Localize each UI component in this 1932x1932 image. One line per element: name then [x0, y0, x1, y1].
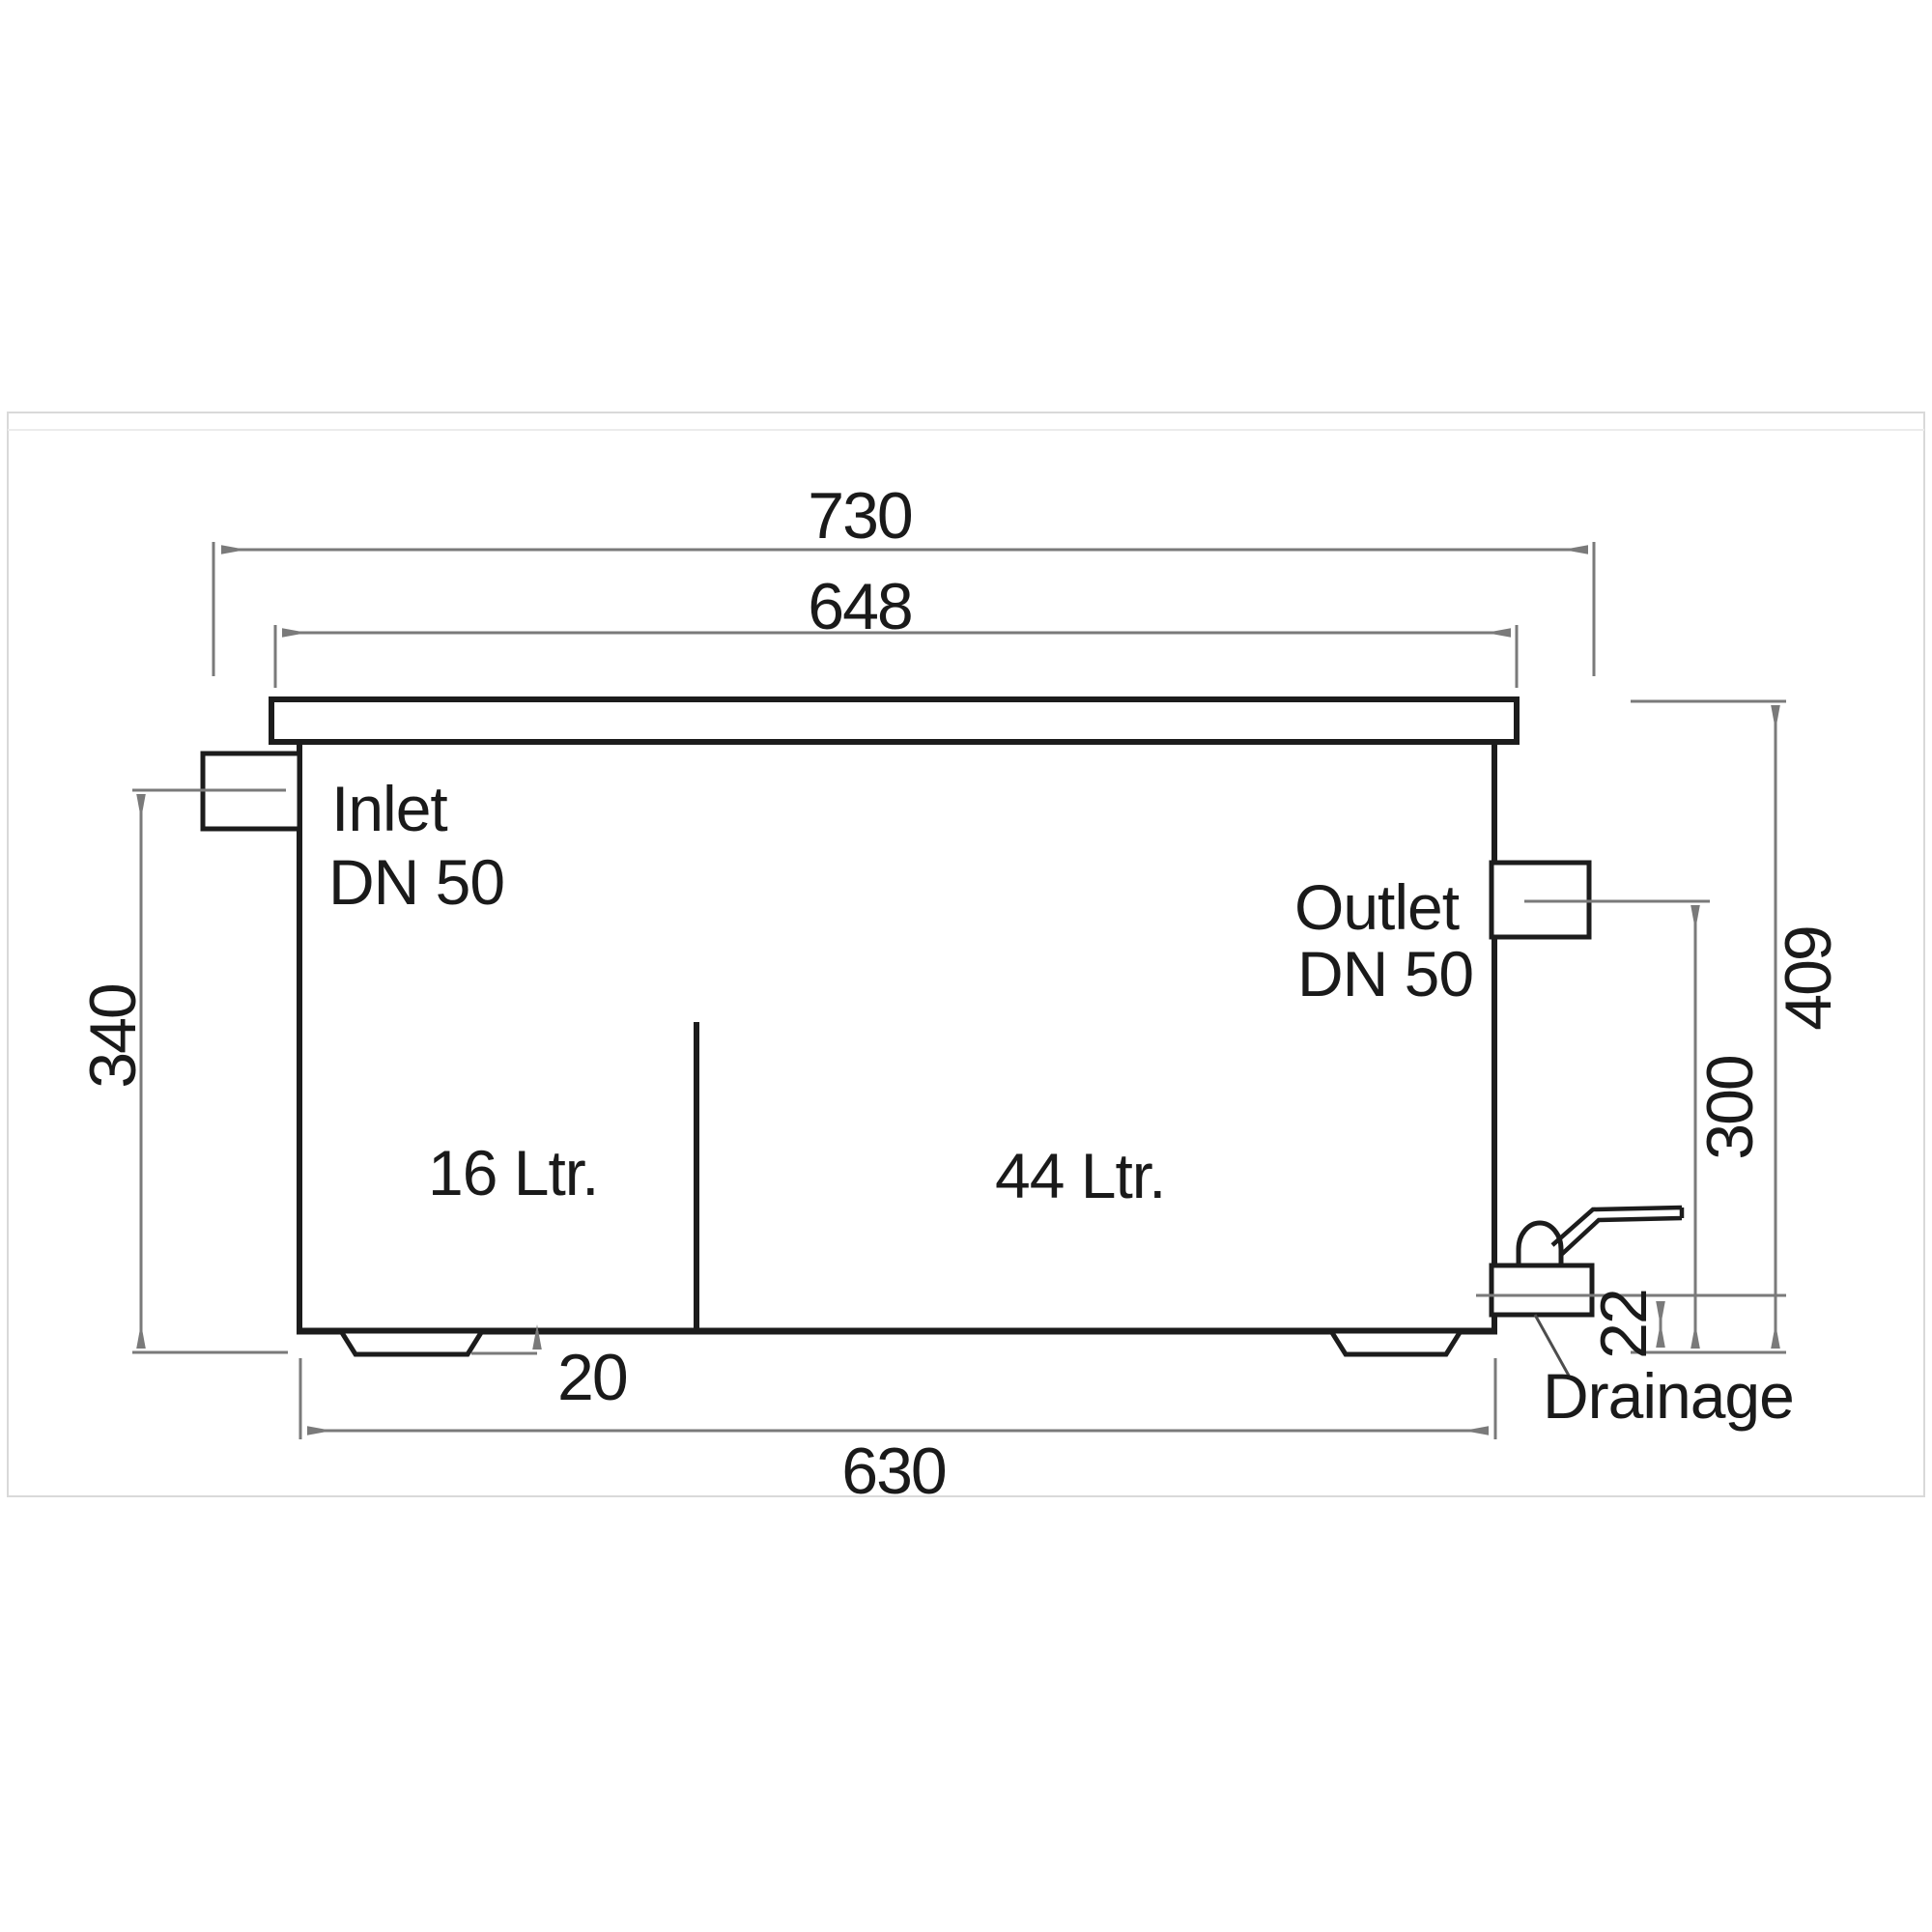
inlet-label: Inlet — [331, 773, 447, 844]
inlet-size-label: DN 50 — [328, 846, 504, 918]
compartment-left-volume-label: 16 Ltr. — [428, 1137, 598, 1208]
outlet-size-label: DN 50 — [1297, 938, 1473, 1009]
drain-valve-body — [1492, 1265, 1592, 1315]
dim-label-409: 409 — [1772, 926, 1845, 1030]
dim-label-730: 730 — [808, 479, 912, 553]
dim-label-22: 22 — [1587, 1290, 1661, 1359]
technical-drawing-canvas: 730 648 340 409 300 22 20 630 Inlet DN 5… — [0, 0, 1932, 1932]
dim-label-648: 648 — [808, 570, 911, 643]
dim-label-300: 300 — [1693, 1056, 1767, 1160]
outlet-label: Outlet — [1294, 871, 1460, 943]
dim-label-340: 340 — [76, 984, 150, 1089]
foot-right — [1331, 1331, 1461, 1354]
compartment-right-volume-label: 44 Ltr. — [995, 1140, 1165, 1211]
drainage-label: Drainage — [1543, 1360, 1794, 1432]
foot-left — [341, 1331, 482, 1354]
drawing-sheet: 730 648 340 409 300 22 20 630 Inlet DN 5… — [0, 0, 1932, 1932]
dim-label-20: 20 — [557, 1341, 627, 1414]
dim-label-630: 630 — [841, 1435, 946, 1508]
lid-cover-plate — [271, 699, 1517, 742]
